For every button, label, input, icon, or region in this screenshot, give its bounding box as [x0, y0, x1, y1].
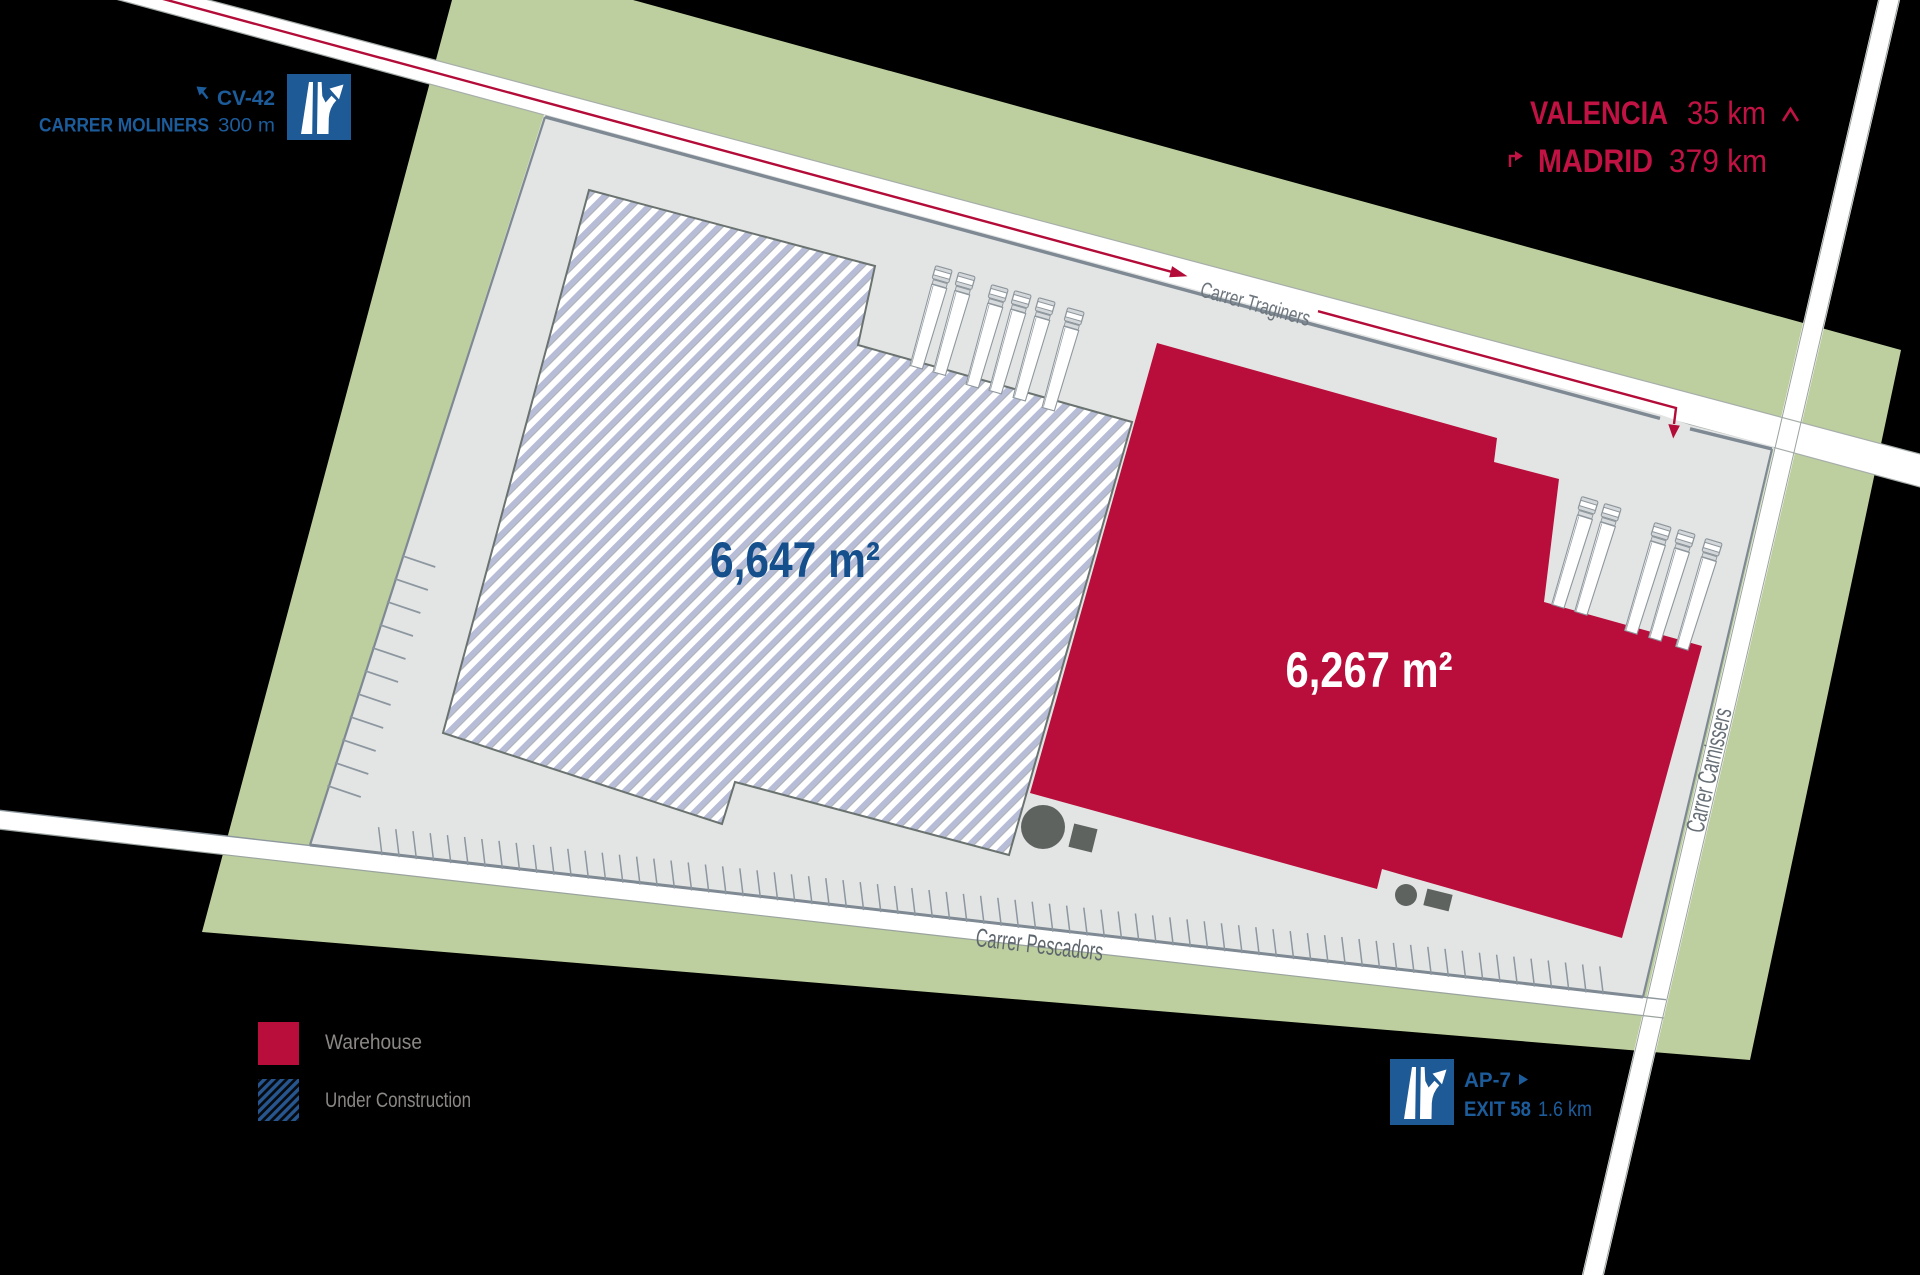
- svg-text:CARRER MOLINERS: CARRER MOLINERS: [39, 115, 209, 137]
- svg-text:Under Construction: Under Construction: [325, 1089, 471, 1112]
- svg-text:6,267 m²: 6,267 m²: [1286, 642, 1453, 698]
- svg-text:EXIT 58: EXIT 58: [1464, 1098, 1531, 1121]
- svg-text:379 km: 379 km: [1669, 143, 1767, 179]
- svg-text:MADRID: MADRID: [1538, 143, 1653, 179]
- svg-text:AP-7: AP-7: [1464, 1069, 1511, 1092]
- svg-text:300 m: 300 m: [218, 115, 275, 137]
- svg-text:1.6 km: 1.6 km: [1538, 1098, 1592, 1121]
- svg-text:VALENCIA: VALENCIA: [1530, 95, 1668, 131]
- svg-text:35 km: 35 km: [1687, 95, 1766, 131]
- svg-text:CV-42: CV-42: [217, 87, 275, 110]
- svg-text:6,647 m²: 6,647 m²: [710, 532, 880, 588]
- svg-text:Warehouse: Warehouse: [325, 1031, 422, 1054]
